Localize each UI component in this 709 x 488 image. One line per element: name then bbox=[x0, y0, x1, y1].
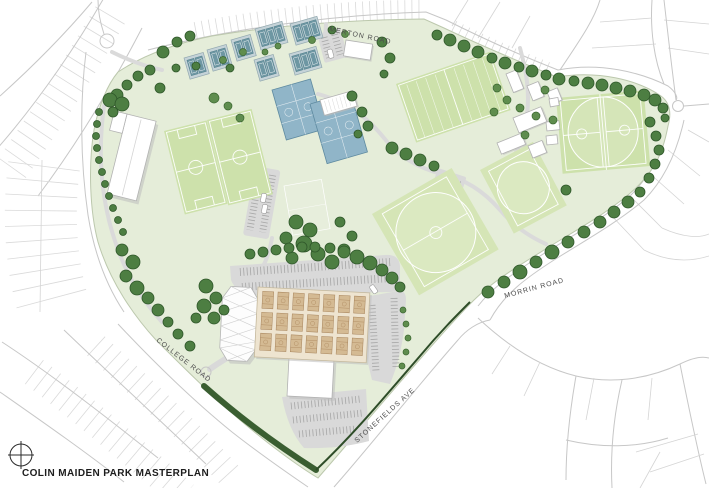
roundabout-top-right bbox=[673, 101, 684, 112]
cricket-oval-northeast bbox=[556, 90, 650, 173]
shed-1 bbox=[549, 97, 559, 106]
north-arrow-icon bbox=[8, 441, 34, 469]
roundabout-top-left bbox=[100, 34, 114, 48]
shed-3 bbox=[546, 135, 558, 145]
park-area bbox=[91, 19, 670, 478]
masterplan-map: MERTON ROAD MORRIN ROAD COLLEGE ROAD STO… bbox=[0, 0, 709, 488]
indoor-courts-hall bbox=[254, 287, 372, 365]
masterplan-page: MERTON ROAD MORRIN ROAD COLLEGE ROAD STO… bbox=[0, 0, 709, 488]
road-label-morrin: MORRIN ROAD bbox=[504, 277, 565, 300]
page-title: COLIN MAIDEN PARK MASTERPLAN bbox=[22, 468, 209, 479]
building-south bbox=[287, 358, 337, 401]
